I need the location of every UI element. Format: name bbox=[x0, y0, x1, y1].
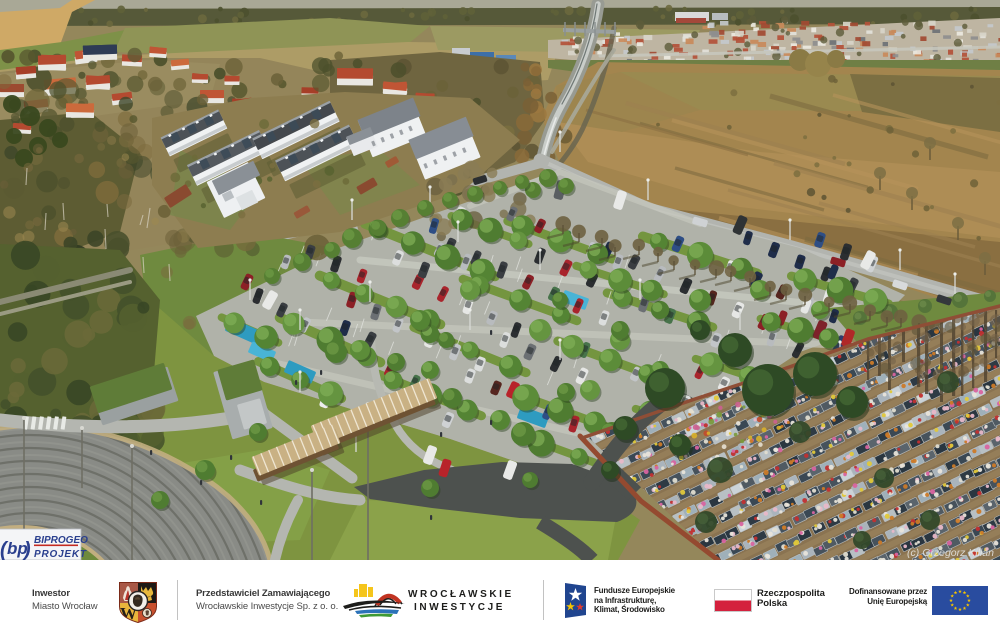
svg-text:): ) bbox=[22, 539, 31, 560]
svg-text:PROJEKT: PROJEKT bbox=[34, 549, 87, 560]
svg-text:BIPROGEO: BIPROGEO bbox=[34, 535, 88, 546]
svg-text:(c) Grzegorz Kilian: (c) Grzegorz Kilian bbox=[907, 547, 994, 559]
